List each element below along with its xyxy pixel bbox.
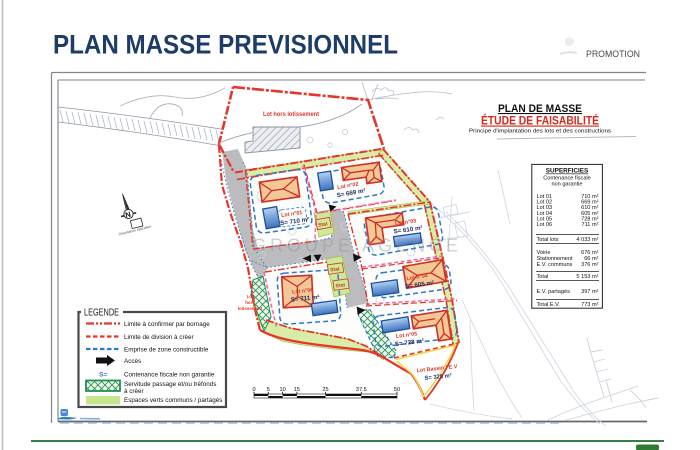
svg-text:PLAN MASSE PREVISIONNEL: PLAN MASSE PREVISIONNEL — [53, 30, 398, 60]
svg-text:397 m²: 397 m² — [581, 289, 599, 295]
svg-text:Total: Total — [537, 274, 549, 280]
svg-text:Accès: Accès — [124, 358, 141, 365]
svg-text:Principe d'implantation des lo: Principe d'implantation des lots et des … — [469, 129, 611, 135]
svg-text:hors: hors — [245, 300, 255, 305]
svg-text:GROUPE AGENCE: GROUPE AGENCE — [252, 236, 462, 256]
svg-text:Servitude passage et/ou tréfon: Servitude passage et/ou tréfonds — [124, 381, 216, 388]
svg-text:Total E.V.: Total E.V. — [537, 302, 561, 308]
svg-text:4 033 m²: 4 033 m² — [576, 237, 598, 243]
svg-text:376 m²: 376 m² — [581, 262, 599, 268]
svg-text:lotissement: lotissement — [238, 306, 263, 311]
svg-text:Lot 06: Lot 06 — [537, 222, 553, 228]
svg-text:LEGENDE: LEGENDE — [84, 308, 119, 319]
svg-text:Lot: Lot — [247, 294, 254, 299]
svg-text:773 m²: 773 m² — [581, 302, 599, 308]
svg-text:Limite de division à créer: Limite de division à créer — [124, 334, 194, 341]
svg-text:PLAN DE MASSE: PLAN DE MASSE — [498, 103, 582, 115]
svg-text:Total lots: Total lots — [537, 237, 559, 243]
svg-text:5 153 m²: 5 153 m² — [576, 274, 598, 280]
svg-text:à créer: à créer — [124, 388, 144, 395]
svg-text:SUPERFICIES: SUPERFICIES — [546, 168, 589, 175]
svg-text:Lot hors lotissement: Lot hors lotissement — [263, 111, 320, 118]
svg-text:Limite à confirmer par bornage: Limite à confirmer par bornage — [124, 321, 210, 328]
svg-text:E.V. communs: E.V. communs — [537, 262, 573, 268]
svg-text:E.V. partagés: E.V. partagés — [537, 289, 571, 295]
svg-text:PROMOTION: PROMOTION — [586, 49, 640, 59]
svg-text:Emprise de zone constructible: Emprise de zone constructible — [124, 347, 209, 354]
svg-text:Espaces verts communs / partag: Espaces verts communs / partagés — [124, 397, 222, 404]
svg-text:non garantie: non garantie — [551, 182, 582, 188]
svg-text:711 m²: 711 m² — [582, 222, 599, 228]
svg-text:ÉTUDE DE FAISABILITÉ: ÉTUDE DE FAISABILITÉ — [481, 115, 599, 128]
svg-text:Contenance fiscale non garanti: Contenance fiscale non garantie — [124, 372, 215, 379]
svg-text:S=: S= — [99, 372, 108, 379]
